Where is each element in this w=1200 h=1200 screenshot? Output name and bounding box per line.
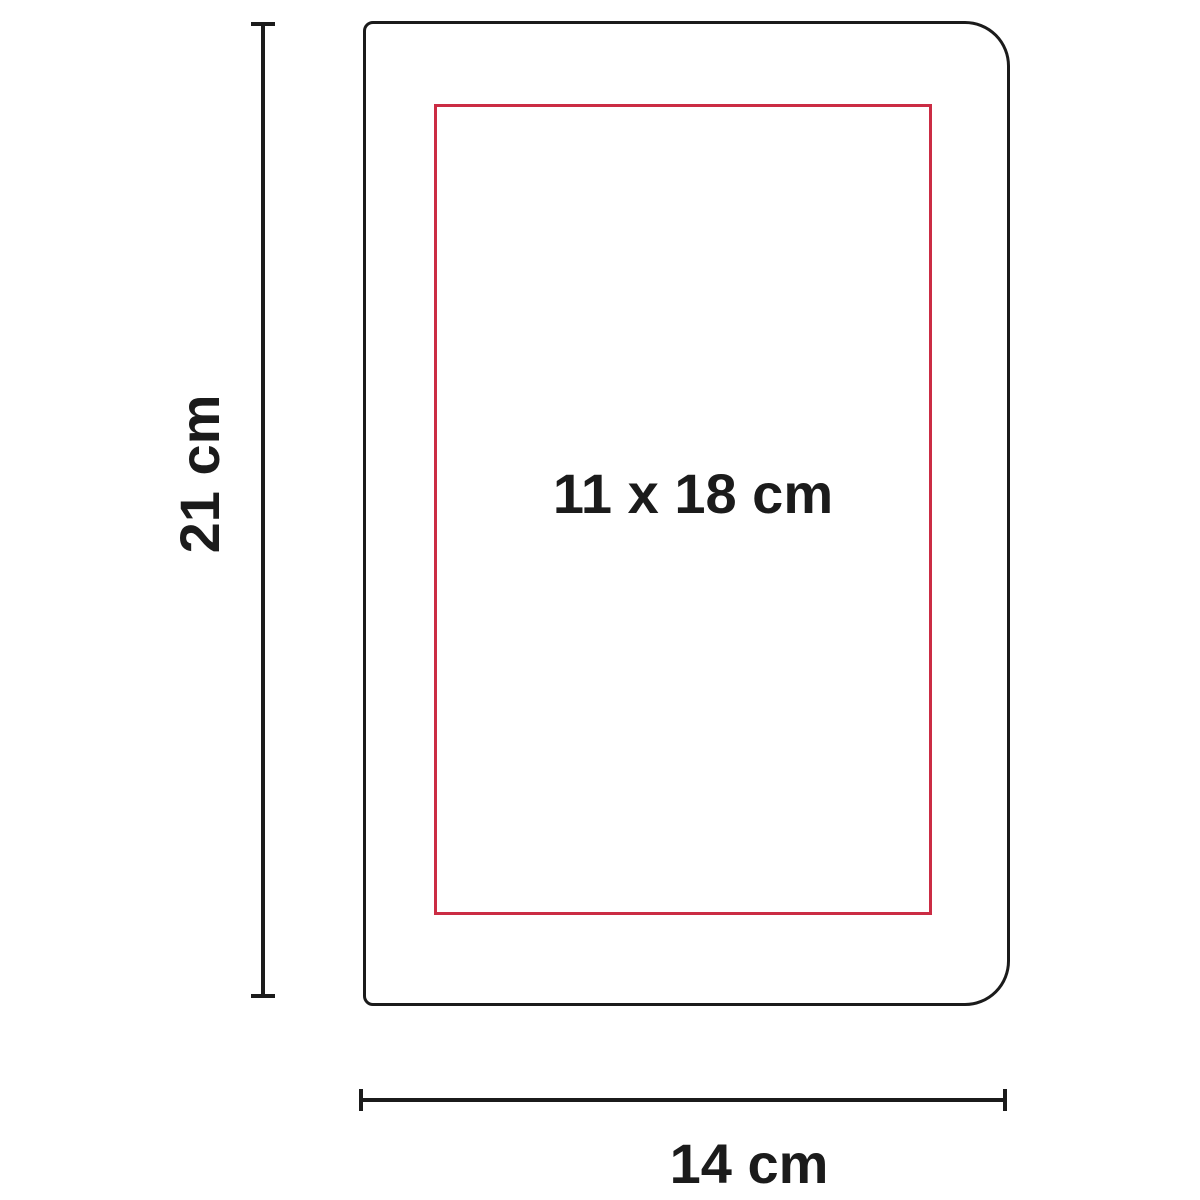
width-dimension-line <box>359 1098 1007 1102</box>
print-area-label: 11 x 18 cm <box>553 466 833 522</box>
dimension-cap-top <box>251 22 275 26</box>
dimension-cap-bottom <box>251 994 275 998</box>
dimension-cap-right <box>1003 1089 1007 1111</box>
dimension-cap-left <box>359 1089 363 1111</box>
dimension-diagram: 21 cm 11 x 18 cm 14 cm <box>0 0 1200 1200</box>
height-dimension-label: 21 cm <box>172 395 228 554</box>
width-dimension-label: 14 cm <box>670 1136 829 1192</box>
height-dimension-line <box>261 22 265 998</box>
